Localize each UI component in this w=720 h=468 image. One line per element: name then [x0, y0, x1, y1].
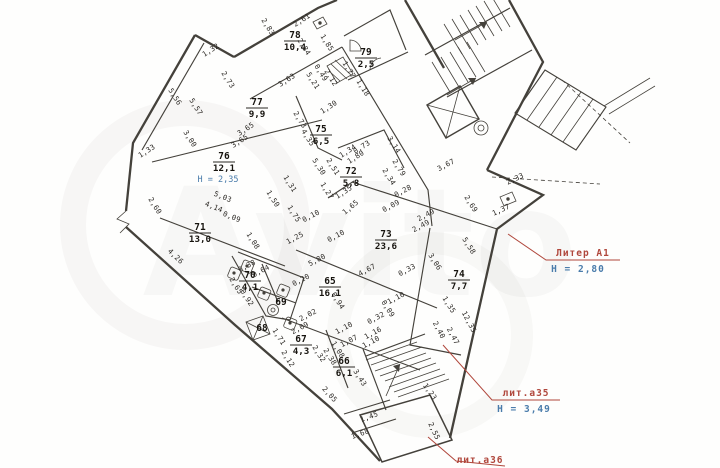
room-area: 7,7 [451, 281, 468, 292]
dimension-label: 2,73 [219, 69, 236, 89]
room-number: 72 [345, 166, 356, 177]
lit-a35-height: Н = 3,49 [497, 404, 551, 415]
room-number: 76 [218, 151, 230, 162]
room-area: 2,5 [358, 59, 375, 70]
vent-box-icon [313, 17, 327, 29]
room-area: 9,9 [249, 109, 266, 120]
liter-a1-label: Литер А1 [556, 248, 610, 259]
room-area: 4,3 [293, 346, 310, 357]
lit-a36-annotation: лит.а36 [428, 437, 505, 466]
lit-a36-label: лит.а36 [456, 455, 503, 466]
floorplan-page: Avito [0, 0, 720, 468]
room-area: 23,6 [375, 241, 398, 252]
room-height: Н = 2,35 [198, 175, 239, 185]
dimension-label: 1,30 [318, 98, 338, 116]
room-number: 67 [295, 334, 306, 345]
dimension-label: 3,00 [181, 128, 198, 148]
lit-a35-label: лит.а35 [502, 388, 549, 399]
room-area: 13,0 [189, 234, 211, 245]
room-number: 68 [256, 323, 268, 334]
garbage-chute [474, 121, 488, 135]
floorplan-drawing: Avito [0, 0, 720, 468]
dimension-label: 1,23 [421, 381, 439, 401]
room-number: 79 [360, 47, 372, 58]
room-number: 75 [315, 124, 327, 135]
room-number: 73 [380, 229, 392, 240]
dimension-label: 3,14 [385, 134, 402, 154]
room-number: 74 [453, 269, 465, 280]
liter-a1-height: Н = 2,80 [551, 264, 605, 275]
room-area: 6,1 [336, 368, 353, 379]
wall-break-symbol [117, 211, 129, 233]
dimension-label: 1,18 [354, 77, 371, 97]
room-number: 77 [251, 97, 262, 108]
room-area: 12,1 [213, 163, 236, 174]
room-number: 65 [324, 276, 336, 287]
dimension-label: 1,85 [318, 32, 335, 52]
room-number: 69 [275, 297, 287, 308]
room-number: 71 [194, 222, 206, 233]
